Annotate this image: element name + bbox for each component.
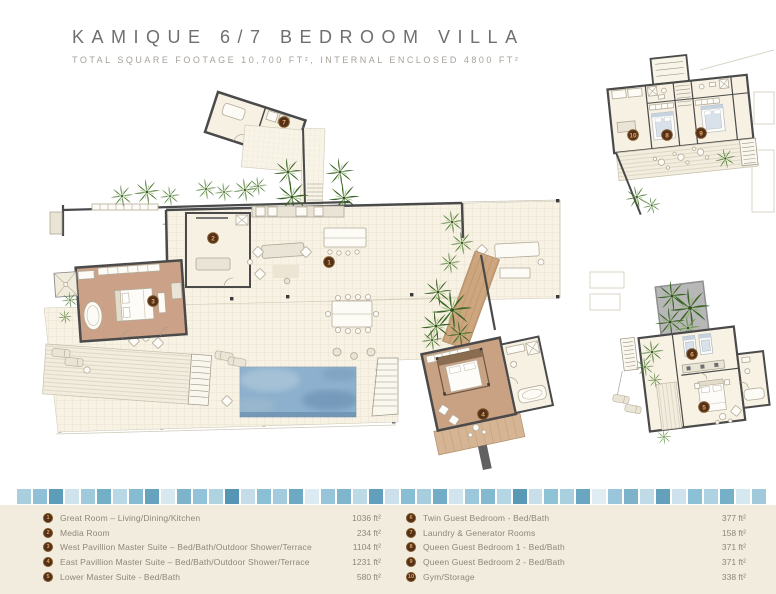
legend-label: Laundry & Generator Rooms: [423, 528, 694, 538]
mosaic-tile: [656, 489, 670, 504]
svg-text:5: 5: [702, 404, 706, 411]
mosaic-tile: [688, 489, 702, 504]
mosaic-tile: [369, 489, 383, 504]
mosaic-tile: [225, 489, 239, 504]
badge-great-room: 1: [324, 257, 335, 268]
mosaic-tile: [736, 489, 750, 504]
mosaic-tile: [241, 489, 255, 504]
svg-text:7: 7: [282, 119, 286, 126]
svg-text:9: 9: [699, 130, 703, 137]
mosaic-tile: [305, 489, 319, 504]
badge-laundry: 7: [279, 117, 290, 128]
legend-value: 580 ft²: [329, 572, 381, 582]
legend-row: 2 Media Room 234 ft²: [43, 526, 381, 541]
legend-badge: 6: [406, 513, 416, 523]
mosaic-tile: [273, 489, 287, 504]
mosaic-tile: [81, 489, 95, 504]
svg-text:8: 8: [665, 132, 669, 139]
mosaic-tile: [720, 489, 734, 504]
legend-badge: 5: [43, 572, 53, 582]
badge-lower-master: 5: [699, 402, 710, 413]
mosaic-tile: [481, 489, 495, 504]
legend-label: Gym/Storage: [423, 572, 694, 582]
svg-text:4: 4: [481, 411, 485, 418]
pool: [235, 367, 358, 417]
north-walkway: [300, 128, 325, 205]
legend-row: 5 Lower Master Suite - Bed/Bath 580 ft²: [43, 569, 381, 584]
svg-text:3: 3: [151, 298, 155, 305]
legend-badge: 8: [406, 542, 416, 552]
badge-west-pavilion: 3: [148, 296, 159, 307]
upper-guest-plan: 10 8 9: [605, 49, 774, 218]
mosaic-tile: [529, 489, 543, 504]
badge-queen-1: 8: [662, 130, 673, 141]
legend-label: Lower Master Suite - Bed/Bath: [60, 572, 329, 582]
svg-text:1: 1: [327, 259, 331, 266]
mosaic-tile: [17, 489, 31, 504]
legend-row: 8 Queen Guest Bedroom 1 - Bed/Bath 371 f…: [406, 540, 746, 555]
deck-lounger: [65, 357, 84, 367]
legend-label: Great Room – Living/Dining/Kitchen: [60, 513, 329, 523]
legend-row: 3 West Pavillion Master Suite – Bed/Bath…: [43, 540, 381, 555]
brochure-page: KAMIQUE 6/7 BEDROOM VILLA TOTAL SQUARE F…: [0, 0, 776, 594]
mosaic-tile: [193, 489, 207, 504]
master-bed-west: [115, 288, 154, 321]
mosaic-tile: [49, 489, 63, 504]
mosaic-tile: [129, 489, 143, 504]
mosaic-tile: [640, 489, 654, 504]
legend-badge: 1: [43, 513, 53, 523]
kitchen-island: [324, 228, 366, 247]
badge-queen-2: 9: [696, 128, 707, 139]
legend-label: Queen Guest Bedroom 1 - Bed/Bath: [423, 542, 694, 552]
mosaic-tile: [433, 489, 447, 504]
mosaic-tile: [449, 489, 463, 504]
legend-column-left: 1 Great Room – Living/Dining/Kitchen 103…: [43, 511, 381, 584]
legend-row: 7 Laundry & Generator Rooms 158 ft²: [406, 526, 746, 541]
legend-value: 1231 ft²: [329, 557, 381, 567]
legend-label: Queen Guest Bedroom 2 - Bed/Bath: [423, 557, 694, 567]
mosaic-tile: [576, 489, 590, 504]
legend-value: 377 ft²: [694, 513, 746, 523]
mosaic-tile: [177, 489, 191, 504]
mosaic-tile: [161, 489, 175, 504]
legend-value: 371 ft²: [694, 542, 746, 552]
mosaic-tile: [592, 489, 606, 504]
svg-text:2: 2: [211, 235, 215, 242]
legend-row: 4 East Pavillion Master Suite – Bed/Bath…: [43, 555, 381, 570]
lower-guest-plan: 6 5: [590, 272, 771, 445]
mosaic-tile: [672, 489, 686, 504]
legend-value: 338 ft²: [694, 572, 746, 582]
mosaic-tile: [321, 489, 335, 504]
mosaic-tile: [353, 489, 367, 504]
media-sofa: [196, 258, 230, 270]
deck-lounger: [52, 348, 71, 358]
mosaic-tile: [145, 489, 159, 504]
legend-value: 371 ft²: [694, 557, 746, 567]
legend-badge: 10: [406, 572, 416, 582]
legend-row: 10 Gym/Storage 338 ft²: [406, 569, 746, 584]
floor-plan-canvas: 1 2 3 4 7: [0, 0, 776, 486]
legend-badge: 9: [406, 557, 416, 567]
sofa: [262, 243, 305, 259]
coffee-table: [500, 268, 530, 278]
legend-value: 158 ft²: [694, 528, 746, 538]
mosaic-tile: [544, 489, 558, 504]
mosaic-tile: [417, 489, 431, 504]
legend-label: Twin Guest Bedroom - Bed/Bath: [423, 513, 694, 523]
svg-text:10: 10: [629, 132, 637, 139]
lower-lounger: [624, 404, 641, 414]
legend-badge: 4: [43, 557, 53, 567]
mosaic-tile: [513, 489, 527, 504]
legend-value: 234 ft²: [329, 528, 381, 538]
mosaic-tile: [33, 489, 47, 504]
mosaic-tile: [209, 489, 223, 504]
lower-lounger: [612, 394, 629, 404]
mosaic-tile: [65, 489, 79, 504]
badge-east-pavilion: 4: [478, 409, 489, 420]
legend-badge: 7: [406, 528, 416, 538]
bridge: [478, 445, 492, 470]
legend-badge: 3: [43, 542, 53, 552]
legend-value: 1036 ft²: [329, 513, 381, 523]
legend-row: 1 Great Room – Living/Dining/Kitchen 103…: [43, 511, 381, 526]
legend: 1 Great Room – Living/Dining/Kitchen 103…: [0, 505, 776, 594]
mosaic-tile: [704, 489, 718, 504]
legend-row: 6 Twin Guest Bedroom - Bed/Bath 377 ft²: [406, 511, 746, 526]
mosaic-tile: [624, 489, 638, 504]
mosaic-tile: [752, 489, 766, 504]
east-pavilion: [418, 330, 564, 479]
mosaic-tile: [289, 489, 303, 504]
legend-column-right: 6 Twin Guest Bedroom - Bed/Bath 377 ft² …: [406, 511, 746, 584]
mosaic-tile: [465, 489, 479, 504]
svg-text:6: 6: [690, 351, 694, 358]
mosaic-tile: [113, 489, 127, 504]
lower-stairs: [610, 337, 641, 396]
mosaic-tile: [560, 489, 574, 504]
legend-label: West Pavillion Master Suite – Bed/Bath/O…: [60, 542, 329, 552]
mosaic-tile: [97, 489, 111, 504]
mosaic-tile: [608, 489, 622, 504]
legend-badge: 2: [43, 528, 53, 538]
tile-strip: [17, 489, 766, 504]
mosaic-tile: [257, 489, 271, 504]
twin-bed: [699, 333, 713, 354]
mosaic-tile: [497, 489, 511, 504]
outdoor-sofa: [495, 242, 540, 258]
badge-media-room: 2: [208, 233, 219, 244]
legend-label: East Pavillion Master Suite – Bed/Bath/O…: [60, 557, 329, 567]
mosaic-tile: [401, 489, 415, 504]
main-floor-plan: 1 2 3 4 7: [43, 92, 564, 478]
badge-twin-bedroom: 6: [687, 349, 698, 360]
mosaic-tile: [337, 489, 351, 504]
outdoor-shower: [54, 272, 78, 297]
deck-table: [84, 367, 90, 373]
legend-row: 9 Queen Guest Bedroom 2 - Bed/Bath 371 f…: [406, 555, 746, 570]
mosaic-tile: [385, 489, 399, 504]
badge-gym: 10: [628, 130, 639, 141]
legend-label: Media Room: [60, 528, 329, 538]
legend-value: 1104 ft²: [329, 542, 381, 552]
media-room: [186, 213, 250, 287]
